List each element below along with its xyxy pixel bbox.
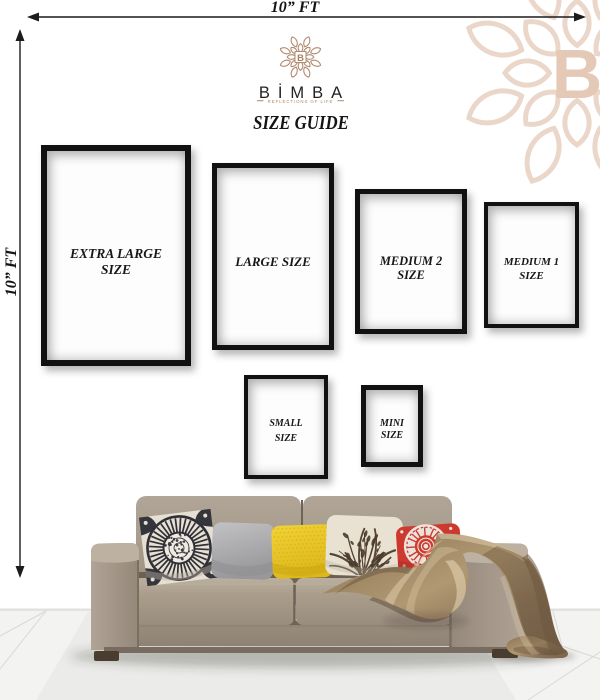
svg-text:B: B xyxy=(297,53,304,64)
svg-text:B: B xyxy=(552,35,600,113)
